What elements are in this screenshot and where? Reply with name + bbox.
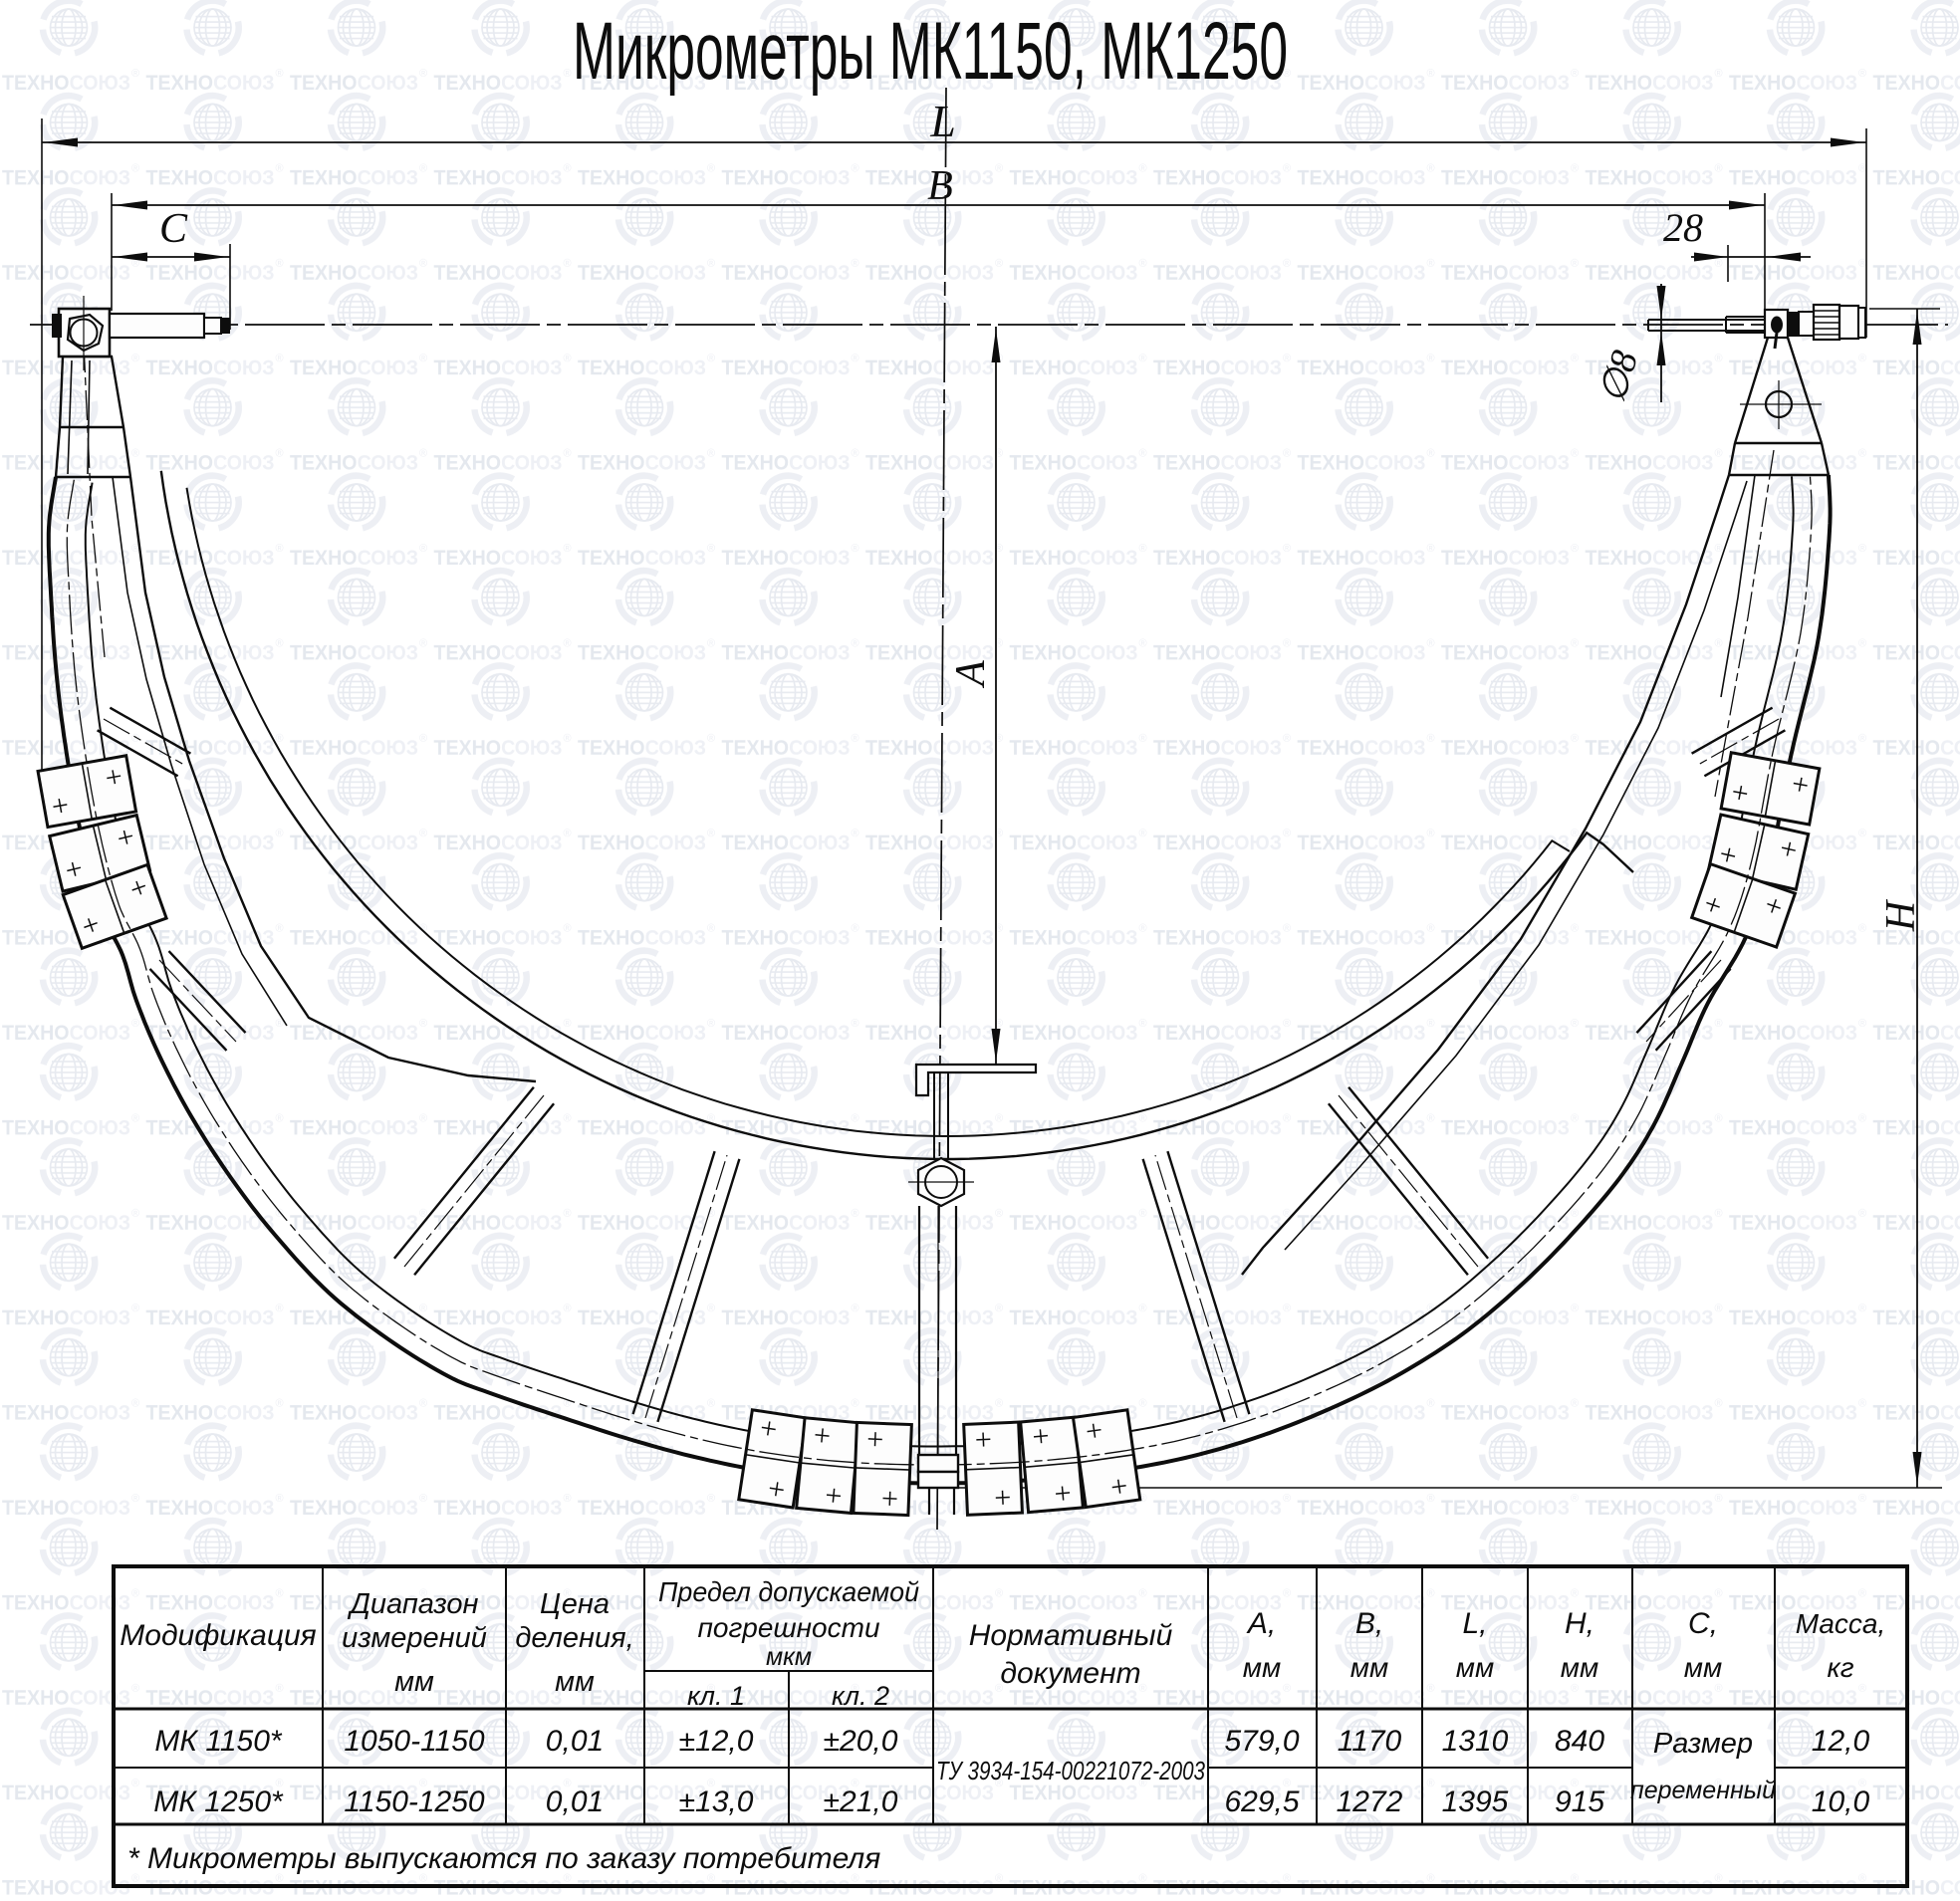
svg-text:мкм: мкм (766, 1643, 812, 1671)
svg-text:ТУ 3934-154-00221072-2003: ТУ 3934-154-00221072-2003 (936, 1756, 1205, 1785)
svg-text:10,0: 10,0 (1812, 1785, 1870, 1818)
svg-text:H: H (1878, 898, 1924, 932)
svg-text:мм: мм (555, 1666, 595, 1698)
svg-text:мм: мм (1243, 1652, 1281, 1683)
svg-text:1395: 1395 (1442, 1785, 1509, 1818)
svg-text:документ: документ (1000, 1657, 1140, 1690)
svg-text:Размер: Размер (1653, 1728, 1753, 1760)
svg-text:Нормативный: Нормативный (969, 1619, 1173, 1652)
svg-text:Масса,: Масса, (1796, 1608, 1886, 1639)
svg-text:* Микрометры выпускаются по за: * Микрометры выпускаются по заказу потре… (127, 1842, 880, 1875)
svg-text:840: 840 (1555, 1725, 1604, 1758)
svg-text:А,: А, (1246, 1607, 1276, 1640)
svg-text:Н,: Н, (1565, 1607, 1594, 1640)
svg-text:L,: L, (1462, 1607, 1487, 1640)
svg-text:915: 915 (1555, 1785, 1604, 1818)
svg-text:1310: 1310 (1442, 1725, 1509, 1758)
svg-text:1150-1250: 1150-1250 (344, 1785, 485, 1818)
svg-text:Модификация: Модификация (120, 1619, 316, 1652)
svg-text:деления,: деления, (515, 1622, 633, 1654)
svg-text:В,: В, (1355, 1607, 1383, 1640)
svg-text:A: A (948, 660, 994, 689)
svg-text:мм: мм (1561, 1652, 1598, 1683)
svg-text:МК 1250*: МК 1250* (153, 1785, 284, 1818)
svg-text:±21,0: ±21,0 (824, 1785, 898, 1818)
svg-text:12,0: 12,0 (1812, 1725, 1870, 1758)
svg-text:С,: С, (1688, 1607, 1718, 1640)
svg-text:0,01: 0,01 (546, 1725, 604, 1758)
svg-text:кг: кг (1827, 1652, 1853, 1683)
svg-text:мм: мм (1684, 1652, 1722, 1683)
svg-text:±12,0: ±12,0 (679, 1725, 754, 1758)
svg-text:L: L (929, 96, 956, 146)
svg-text:28: 28 (1663, 205, 1703, 250)
svg-text:мм: мм (1350, 1652, 1388, 1683)
svg-text:кл. 2: кл. 2 (832, 1681, 889, 1711)
svg-text:мм: мм (1456, 1652, 1494, 1683)
svg-text:измерений: измерений (342, 1622, 487, 1654)
svg-text:±20,0: ±20,0 (824, 1725, 898, 1758)
svg-text:кл. 1: кл. 1 (687, 1681, 745, 1711)
svg-text:Микрометры МК1150, МК1250: Микрометры МК1150, МК1250 (573, 6, 1288, 97)
svg-text:Диапазон: Диапазон (347, 1588, 478, 1620)
svg-text:Цена: Цена (540, 1588, 610, 1620)
svg-text:Предел допускаемой: Предел допускаемой (658, 1576, 919, 1607)
svg-text:МК 1150*: МК 1150* (154, 1725, 283, 1758)
svg-text:1050-1150: 1050-1150 (344, 1725, 485, 1758)
svg-text:погрешности: погрешности (697, 1612, 879, 1643)
svg-text:переменный: переменный (1630, 1777, 1776, 1804)
svg-text:мм: мм (394, 1666, 434, 1698)
svg-text:±13,0: ±13,0 (679, 1785, 754, 1818)
svg-text:1272: 1272 (1337, 1785, 1403, 1818)
svg-text:579,0: 579,0 (1224, 1725, 1299, 1758)
svg-text:B: B (927, 163, 953, 209)
svg-text:0,01: 0,01 (546, 1785, 604, 1818)
svg-text:629,5: 629,5 (1224, 1785, 1299, 1818)
svg-text:1170: 1170 (1338, 1725, 1402, 1758)
svg-text:C: C (159, 206, 188, 252)
